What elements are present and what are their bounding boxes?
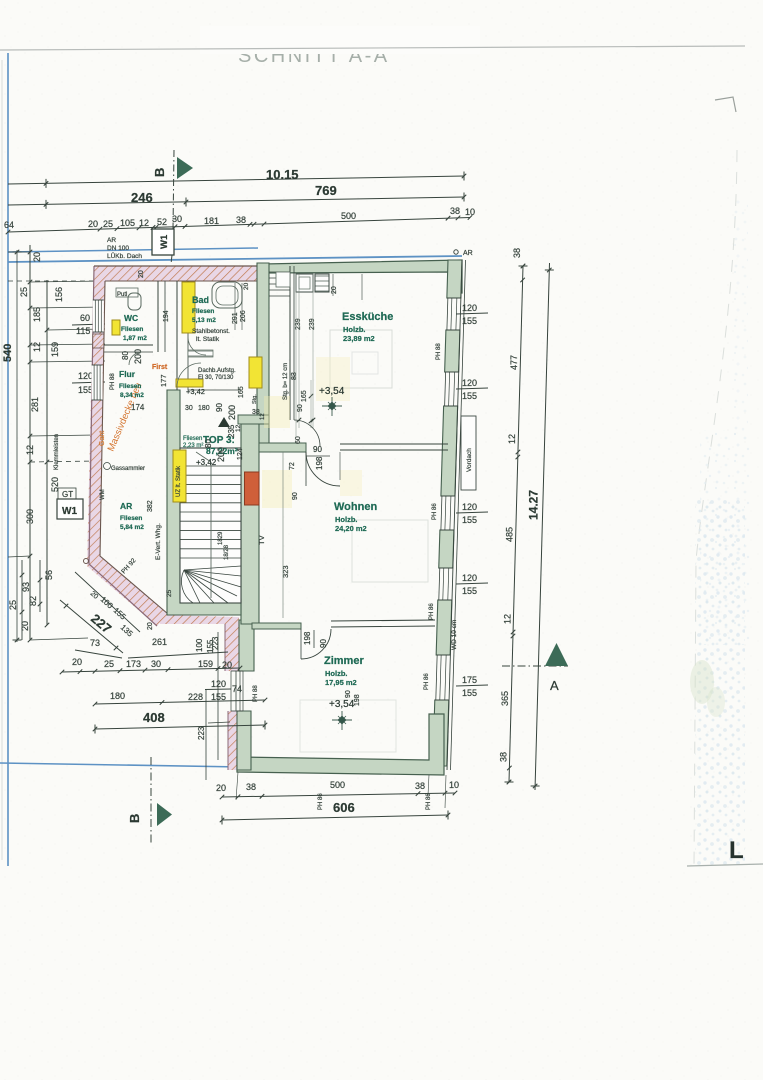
svg-text:200: 200 [227,405,237,420]
svg-text:38: 38 [512,248,522,258]
svg-text:Fliesen: Fliesen [120,515,142,522]
svg-text:12: 12 [32,342,42,352]
svg-text:Dachb.Aufstg.: Dachb.Aufstg. [198,368,236,374]
svg-text:Gant: Gant [99,431,106,446]
svg-text:80: 80 [204,439,213,448]
svg-text:80: 80 [121,351,130,360]
svg-text:12: 12 [507,434,517,444]
svg-text:38: 38 [415,781,425,791]
svg-text:165: 165 [238,386,245,398]
svg-text:200: 200 [216,447,226,462]
svg-text:Holzb.: Holzb. [343,325,366,334]
svg-text:180: 180 [198,405,210,412]
svg-text:500: 500 [330,780,345,790]
svg-text:W1: W1 [159,234,170,249]
svg-text:25: 25 [103,219,113,229]
svg-text:2,23 m²: 2,23 m² [183,443,203,449]
svg-text:120: 120 [462,303,477,313]
svg-text:38: 38 [450,206,460,216]
svg-text:74: 74 [232,684,242,694]
svg-text:20: 20 [138,270,145,278]
svg-text:Flur: Flur [119,369,136,379]
svg-text:83: 83 [291,372,298,380]
svg-text:105: 105 [120,218,135,228]
svg-text:12: 12 [139,218,149,228]
svg-text:El 30, 70/130: El 30, 70/130 [198,375,234,381]
svg-text:PH 86: PH 86 [424,673,430,690]
svg-text:30: 30 [151,659,161,669]
svg-text:PH 86: PH 86 [429,603,435,620]
svg-text:Putl: Putl [117,292,127,298]
svg-text:198: 198 [354,694,361,706]
svg-text:WC: WC [124,313,138,323]
svg-text:First: First [152,364,168,371]
svg-text:A: A [550,678,559,693]
svg-text:12: 12 [502,614,512,624]
svg-text:25: 25 [166,589,173,597]
svg-text:25: 25 [104,659,114,669]
svg-text:56: 56 [44,570,54,580]
svg-text:173: 173 [126,659,141,669]
svg-text:155: 155 [462,391,477,401]
svg-text:20: 20 [32,252,42,262]
svg-text:12: 12 [25,445,35,455]
svg-text:10: 10 [449,780,459,790]
svg-text:90: 90 [319,639,328,648]
svg-text:Essküche: Essküche [342,311,393,323]
svg-text:+3,42: +3,42 [196,458,217,467]
svg-text:8,34 m2: 8,34 m2 [120,392,144,399]
svg-text:+3,54: +3,54 [329,699,355,710]
svg-text:408: 408 [143,710,165,725]
svg-text:20: 20 [243,282,250,290]
svg-text:PH 86: PH 86 [432,503,438,520]
svg-text:323: 323 [281,565,290,578]
svg-text:Holzb.: Holzb. [325,669,348,678]
svg-text:261: 261 [152,637,167,647]
svg-text:UZ lt. Statik: UZ lt. Statik [176,465,182,497]
svg-text:156: 156 [54,287,64,302]
svg-text:73: 73 [90,638,100,648]
svg-text:Fliesen: Fliesen [121,326,143,333]
svg-text:606: 606 [333,800,355,815]
svg-text:155: 155 [206,639,215,653]
svg-text:38: 38 [236,215,246,225]
svg-text:155: 155 [462,688,477,698]
svg-text:20: 20 [147,622,154,630]
svg-text:B: B [127,814,142,823]
svg-text:TV: TV [257,535,266,545]
svg-text:10: 10 [465,207,475,217]
svg-text:AR: AR [463,250,473,257]
svg-text:PH 88: PH 88 [253,685,259,702]
svg-text:WD 10 cm: WD 10 cm [451,620,458,650]
svg-text:PH 88: PH 88 [110,373,116,390]
svg-text:115: 115 [76,326,90,336]
svg-text:Bad: Bad [192,295,209,305]
svg-text:90: 90 [313,445,322,454]
svg-text:30: 30 [185,405,193,412]
svg-text:B: B [152,168,167,177]
svg-text:223: 223 [197,726,206,740]
svg-text:206: 206 [240,310,247,322]
svg-text:+3,42: +3,42 [186,387,205,396]
svg-text:246: 246 [131,190,153,205]
svg-text:Gassammler: Gassammler [111,466,145,472]
svg-text:200: 200 [133,349,143,364]
svg-text:18/28: 18/28 [224,544,230,560]
svg-text:198: 198 [315,456,324,470]
svg-text:155: 155 [462,586,477,596]
svg-text:72: 72 [289,462,296,470]
svg-text:185: 185 [32,307,42,322]
svg-text:177: 177 [159,374,168,387]
svg-text:L: L [729,837,744,864]
svg-text:485: 485 [505,527,515,542]
svg-text:124: 124 [237,448,244,460]
svg-text:25: 25 [8,600,18,610]
svg-text:180: 180 [110,691,125,701]
svg-text:181: 181 [204,216,219,226]
svg-text:120: 120 [211,679,226,689]
svg-text:228: 228 [188,692,203,702]
svg-text:23,89 m2: 23,89 m2 [343,334,375,343]
svg-text:Fliesen: Fliesen [183,436,202,442]
svg-text:17,95 m2: 17,95 m2 [325,678,357,687]
svg-text:38: 38 [246,782,256,792]
svg-text:90: 90 [292,492,299,500]
svg-text:64: 64 [4,220,14,230]
svg-text:W1: W1 [62,506,77,517]
svg-text:E-Vert. Whg.: E-Vert. Whg. [155,523,162,560]
svg-text:174: 174 [131,403,145,412]
svg-text:52: 52 [157,217,167,227]
svg-text:520: 520 [50,477,60,492]
svg-text:20: 20 [216,783,226,793]
svg-text:90: 90 [297,404,304,412]
svg-text:+3,54: +3,54 [319,386,345,397]
svg-text:60: 60 [80,313,90,323]
svg-text:300: 300 [25,509,35,524]
svg-text:PH 88: PH 88 [436,343,442,360]
svg-text:Fliesen: Fliesen [192,308,214,315]
svg-text:Stg. b= 12 cm: Stg. b= 12 cm [283,363,289,400]
svg-text:Holzb.: Holzb. [335,515,358,524]
svg-text:10.15: 10.15 [266,167,299,182]
svg-text:120: 120 [78,371,93,381]
svg-text:12: 12 [235,424,242,432]
svg-text:Zimmer: Zimmer [324,655,364,667]
svg-text:281: 281 [30,397,40,412]
svg-text:120: 120 [462,573,477,583]
svg-text:100: 100 [195,638,204,652]
svg-text:DN 100: DN 100 [107,245,129,252]
svg-text:20: 20 [20,621,30,631]
svg-text:382: 382 [147,500,154,512]
svg-text:AR: AR [120,501,132,511]
svg-text:Stg.: Stg. [252,394,258,404]
svg-text:38: 38 [252,409,260,416]
svg-text:93: 93 [21,582,31,592]
svg-text:Klemmleisten: Klemmleisten [54,434,60,470]
svg-text:500: 500 [341,211,356,221]
svg-text:194: 194 [163,310,170,322]
svg-text:239: 239 [309,318,316,330]
svg-text:82: 82 [28,596,38,606]
svg-text:120: 120 [462,502,477,512]
svg-text:AR: AR [107,237,116,244]
svg-text:175: 175 [462,675,477,685]
svg-text:PH 86: PH 86 [426,793,432,810]
svg-text:90: 90 [345,690,352,698]
svg-text:165: 165 [301,390,308,402]
svg-text:155: 155 [462,515,477,525]
svg-text:PH 86: PH 86 [318,793,324,810]
svg-text:120: 120 [462,378,477,388]
svg-text:20: 20 [72,657,82,667]
svg-text:14.27: 14.27 [526,490,540,520]
svg-text:Fliesen: Fliesen [119,383,141,390]
svg-text:540: 540 [2,344,14,362]
svg-text:769: 769 [315,183,337,198]
svg-text:24,20 m2: 24,20 m2 [335,524,367,533]
svg-text:5,13 m2: 5,13 m2 [192,317,216,324]
svg-text:477: 477 [509,355,519,370]
svg-text:GT: GT [62,490,73,499]
svg-text:WM: WM [100,489,106,500]
svg-text:20: 20 [331,286,338,294]
svg-text:20: 20 [88,219,98,229]
svg-text:365: 365 [500,691,510,706]
svg-text:155: 155 [462,316,477,326]
svg-text:lt. Statik: lt. Statik [196,336,220,343]
svg-text:12: 12 [260,413,266,420]
svg-text:1829: 1829 [218,531,224,545]
svg-text:1,87 m2: 1,87 m2 [123,335,147,342]
svg-text:159: 159 [50,342,60,357]
svg-text:5,84 m2: 5,84 m2 [120,524,144,531]
svg-text:291: 291 [232,312,239,324]
svg-text:Wohnen: Wohnen [334,501,377,513]
svg-text:Stahlbetonst.: Stahlbetonst. [192,328,230,335]
svg-text:38: 38 [499,752,509,762]
svg-text:155: 155 [78,385,93,395]
svg-text:Vordach: Vordach [466,448,473,472]
svg-text:25: 25 [19,287,29,297]
svg-text:155: 155 [211,692,226,702]
svg-text:159: 159 [198,659,213,669]
svg-text:LÜKb. Dach: LÜKb. Dach [107,252,142,260]
svg-text:90: 90 [215,403,224,412]
svg-text:198: 198 [303,631,312,645]
